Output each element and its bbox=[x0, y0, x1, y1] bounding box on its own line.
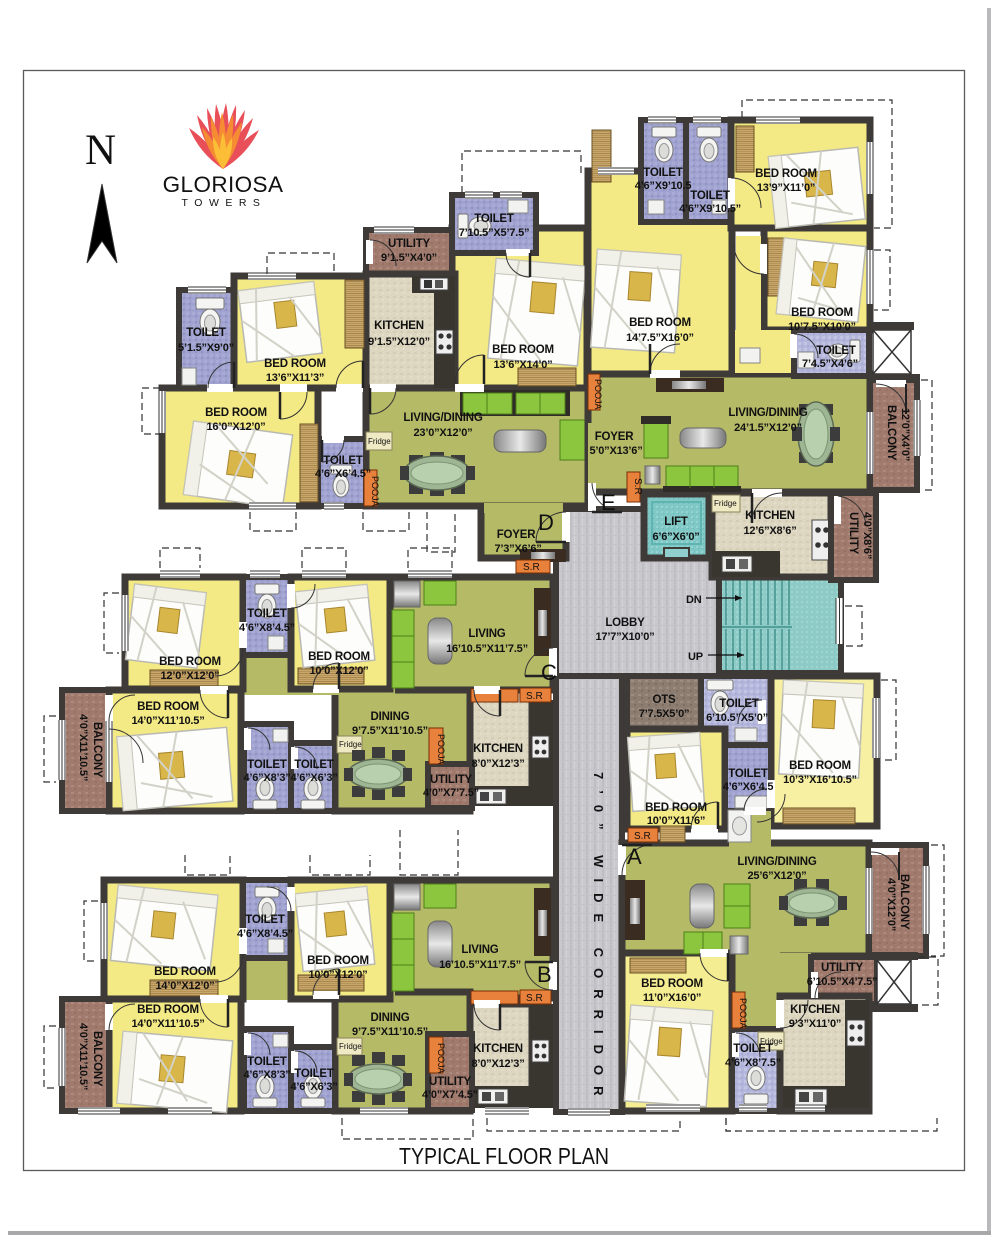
svg-text:4’0”X12’0”: 4’0”X12’0” bbox=[885, 878, 897, 931]
svg-text:BED ROOM: BED ROOM bbox=[137, 701, 199, 713]
svg-text:4’6”X6’4.5: 4’6”X6’4.5 bbox=[723, 781, 774, 793]
svg-text:S.R: S.R bbox=[634, 831, 651, 842]
svg-text:5’1.5”X9’0”: 5’1.5”X9’0” bbox=[178, 342, 234, 354]
svg-text:LIVING: LIVING bbox=[461, 944, 498, 956]
svg-text:10’0”X12’0”: 10’0”X12’0” bbox=[310, 665, 369, 677]
svg-text:Fridge: Fridge bbox=[339, 1042, 362, 1051]
svg-text:TOILET: TOILET bbox=[247, 1056, 287, 1068]
svg-text:TYPICAL FLOOR PLAN: TYPICAL FLOOR PLAN bbox=[399, 1143, 609, 1169]
svg-text:BED ROOM: BED ROOM bbox=[205, 407, 267, 419]
svg-text:4’6”X8’4.5”: 4’6”X8’4.5” bbox=[239, 622, 295, 634]
svg-text:13’6”X14’0”: 13’6”X14’0” bbox=[494, 359, 553, 371]
svg-text:UTILITY: UTILITY bbox=[429, 1076, 472, 1088]
svg-text:BED ROOM: BED ROOM bbox=[755, 168, 817, 180]
svg-text:14’7.5”X16’0”: 14’7.5”X16’0” bbox=[626, 332, 694, 344]
svg-text:10’3”X16’10.5”: 10’3”X16’10.5” bbox=[783, 774, 857, 786]
svg-text:FOYER: FOYER bbox=[595, 431, 635, 443]
svg-text:BED ROOM: BED ROOM bbox=[307, 955, 369, 967]
svg-text:14’0”X11’10.5”: 14’0”X11’10.5” bbox=[131, 1018, 204, 1030]
svg-text:8’0”X12’3”: 8’0”X12’3” bbox=[471, 1058, 524, 1070]
svg-text:FOYER: FOYER bbox=[497, 529, 537, 541]
svg-text:TOILET: TOILET bbox=[690, 190, 730, 202]
svg-text:LIVING/DINING: LIVING/DINING bbox=[728, 407, 807, 419]
svg-text:BALCONY: BALCONY bbox=[898, 874, 910, 930]
svg-text:C: C bbox=[541, 660, 557, 685]
svg-text:E: E bbox=[601, 490, 616, 515]
svg-text:POOJA: POOJA bbox=[436, 1043, 446, 1074]
svg-text:TOWERS: TOWERS bbox=[182, 197, 267, 209]
svg-text:KITCHEN: KITCHEN bbox=[473, 1043, 523, 1055]
svg-text:BED ROOM: BED ROOM bbox=[791, 307, 853, 319]
svg-text:UTILITY: UTILITY bbox=[847, 512, 859, 555]
svg-text:4’6”X9’10.5”: 4’6”X9’10.5” bbox=[679, 203, 741, 215]
svg-text:BED ROOM: BED ROOM bbox=[137, 1004, 199, 1016]
svg-text:LIVING/DINING: LIVING/DINING bbox=[737, 856, 816, 868]
svg-text:4’6”X6’3”: 4’6”X6’3” bbox=[290, 772, 337, 784]
svg-text:13’9”X11’0”: 13’9”X11’0” bbox=[757, 182, 815, 194]
svg-text:TOILET: TOILET bbox=[186, 327, 226, 339]
svg-text:KITCHEN: KITCHEN bbox=[374, 320, 424, 332]
svg-text:TOILET: TOILET bbox=[733, 1043, 773, 1055]
svg-text:16’10.5”X11’7.5”: 16’10.5”X11’7.5” bbox=[439, 959, 521, 971]
svg-text:KITCHEN: KITCHEN bbox=[745, 510, 795, 522]
svg-text:11’0”X16’0”: 11’0”X16’0” bbox=[643, 992, 701, 1004]
svg-text:7’7.5X5’0”: 7’7.5X5’0” bbox=[639, 708, 690, 720]
svg-text:10’7.5”X10’0”: 10’7.5”X10’0” bbox=[788, 321, 856, 333]
svg-text:17’7”X10’0”: 17’7”X10’0” bbox=[596, 631, 655, 643]
svg-text:BALCONY: BALCONY bbox=[91, 722, 103, 778]
svg-text:A: A bbox=[627, 844, 642, 869]
svg-text:9’3”X11’0”: 9’3”X11’0” bbox=[789, 1018, 841, 1030]
svg-text:7’0” WIDE CORRIDOR: 7’0” WIDE CORRIDOR bbox=[591, 772, 606, 1107]
svg-text:BED ROOM: BED ROOM bbox=[641, 978, 703, 990]
svg-text:4’0”X8’6”: 4’0”X8’6” bbox=[861, 512, 873, 559]
svg-text:Fridge: Fridge bbox=[714, 499, 737, 508]
svg-text:4’6”X8’3”: 4’6”X8’3” bbox=[243, 1069, 290, 1081]
svg-text:POOJA: POOJA bbox=[436, 734, 446, 765]
svg-text:POOJA: POOJA bbox=[738, 998, 748, 1029]
svg-text:TOILET: TOILET bbox=[247, 759, 287, 771]
svg-text:DINING: DINING bbox=[370, 1012, 409, 1024]
svg-text:8’0”X12’3”: 8’0”X12’3” bbox=[471, 758, 524, 770]
svg-text:POOJA: POOJA bbox=[370, 476, 380, 507]
svg-text:9’1.5”X12’0”: 9’1.5”X12’0” bbox=[368, 336, 430, 348]
svg-text:BED ROOM: BED ROOM bbox=[645, 802, 707, 814]
svg-text:4’6”X6’3”: 4’6”X6’3” bbox=[290, 1081, 337, 1093]
svg-text:4’0”X11’10.5”: 4’0”X11’10.5” bbox=[77, 714, 89, 781]
svg-text:4’6”X9’10.5: 4’6”X9’10.5 bbox=[635, 180, 692, 192]
svg-text:LIVING/DINING: LIVING/DINING bbox=[403, 412, 482, 424]
svg-text:UTILITY: UTILITY bbox=[821, 962, 864, 974]
svg-text:10’0”X12’0”: 10’0”X12’0” bbox=[309, 969, 368, 981]
svg-text:6’6”X6’0”: 6’6”X6’0” bbox=[652, 531, 699, 543]
svg-text:14’0”X12’0”: 14’0”X12’0” bbox=[156, 980, 215, 992]
svg-text:14’0”X11’10.5”: 14’0”X11’10.5” bbox=[131, 715, 204, 727]
svg-text:S.R: S.R bbox=[526, 691, 543, 702]
svg-text:TOILET: TOILET bbox=[719, 698, 759, 710]
svg-text:D: D bbox=[538, 510, 554, 535]
svg-text:S.R: S.R bbox=[632, 478, 643, 495]
svg-text:12’0”X12’0”: 12’0”X12’0” bbox=[161, 670, 220, 682]
svg-text:LIVING: LIVING bbox=[468, 628, 505, 640]
svg-text:TOILET: TOILET bbox=[247, 608, 287, 620]
svg-text:BALCONY: BALCONY bbox=[885, 405, 897, 461]
svg-text:7’10.5”X5’7.5”: 7’10.5”X5’7.5” bbox=[459, 227, 530, 239]
svg-text:7’3”X6’6”: 7’3”X6’6” bbox=[494, 543, 541, 555]
svg-text:12’0”X4’0”: 12’0”X4’0” bbox=[899, 408, 911, 461]
svg-text:GLORIOSA: GLORIOSA bbox=[163, 172, 284, 197]
svg-text:UP: UP bbox=[688, 651, 703, 663]
svg-text:N: N bbox=[85, 127, 116, 174]
svg-text:DINING: DINING bbox=[370, 711, 409, 723]
svg-text:4’6”X8’7.5”: 4’6”X8’7.5” bbox=[725, 1057, 781, 1069]
svg-text:4’6”X6’4.5”: 4’6”X6’4.5” bbox=[315, 468, 371, 480]
svg-text:TOILET: TOILET bbox=[816, 345, 856, 357]
svg-text:10’0”X11’6”: 10’0”X11’6” bbox=[647, 815, 705, 827]
svg-text:12’6”X8’6”: 12’6”X8’6” bbox=[743, 525, 796, 537]
svg-text:4’6”X8’4.5”: 4’6”X8’4.5” bbox=[237, 928, 293, 940]
svg-text:BED ROOM: BED ROOM bbox=[492, 344, 554, 356]
svg-text:13’6”X11’3”: 13’6”X11’3” bbox=[266, 372, 324, 384]
svg-text:B: B bbox=[537, 962, 552, 987]
svg-text:UTILITY: UTILITY bbox=[388, 238, 431, 250]
svg-text:4’0”X7’4.5”: 4’0”X7’4.5” bbox=[422, 1089, 478, 1101]
svg-text:BED ROOM: BED ROOM bbox=[308, 651, 370, 663]
svg-text:4’6”X8’3”: 4’6”X8’3” bbox=[243, 772, 290, 784]
svg-text:5’0”X13’6”: 5’0”X13’6” bbox=[589, 445, 642, 457]
svg-text:16’10.5”X11’7.5”: 16’10.5”X11’7.5” bbox=[446, 643, 528, 655]
svg-text:BED ROOM: BED ROOM bbox=[159, 656, 221, 668]
svg-text:BED ROOM: BED ROOM bbox=[629, 317, 691, 329]
svg-text:23’0”X12’0”: 23’0”X12’0” bbox=[414, 427, 473, 439]
svg-text:6’10.5”X5’0”: 6’10.5”X5’0” bbox=[706, 712, 768, 724]
svg-text:BALCONY: BALCONY bbox=[91, 1031, 103, 1087]
svg-text:Fridge: Fridge bbox=[368, 437, 391, 446]
svg-text:OTS: OTS bbox=[652, 694, 676, 706]
svg-text:TOILET: TOILET bbox=[474, 213, 514, 225]
svg-text:TOILET: TOILET bbox=[643, 167, 683, 179]
svg-text:16’0”X12’0”: 16’0”X12’0” bbox=[207, 421, 266, 433]
svg-text:25’6”X12’0”: 25’6”X12’0” bbox=[748, 870, 807, 882]
svg-text:DN: DN bbox=[686, 594, 702, 606]
svg-text:UTILITY: UTILITY bbox=[430, 774, 473, 786]
svg-text:6’10.5”X4’7.5”: 6’10.5”X4’7.5” bbox=[807, 976, 878, 988]
svg-text:24’1.5”X12’0”: 24’1.5”X12’0” bbox=[734, 422, 802, 434]
svg-text:BED ROOM: BED ROOM bbox=[154, 966, 216, 978]
svg-text:S.R: S.R bbox=[526, 993, 543, 1004]
svg-text:4’0”X7’7.5”: 4’0”X7’7.5” bbox=[423, 787, 479, 799]
svg-text:9’7.5”X11’10.5”: 9’7.5”X11’10.5” bbox=[352, 725, 428, 737]
svg-text:TOILET: TOILET bbox=[728, 768, 768, 780]
svg-text:POOJA: POOJA bbox=[593, 379, 603, 410]
svg-text:S.R: S.R bbox=[523, 562, 540, 573]
svg-text:9’1.5”X4’0”: 9’1.5”X4’0” bbox=[381, 252, 437, 264]
svg-text:LIFT: LIFT bbox=[664, 516, 688, 528]
svg-text:TOILET: TOILET bbox=[323, 455, 363, 467]
svg-text:KITCHEN: KITCHEN bbox=[790, 1004, 840, 1016]
svg-text:4’0”X11’10.5”: 4’0”X11’10.5” bbox=[77, 1023, 89, 1090]
svg-text:BED ROOM: BED ROOM bbox=[264, 358, 326, 370]
svg-text:9’7.5”X11’10.5”: 9’7.5”X11’10.5” bbox=[352, 1026, 428, 1038]
svg-text:BED ROOM: BED ROOM bbox=[789, 760, 851, 772]
svg-text:Fridge: Fridge bbox=[339, 740, 362, 749]
svg-text:KITCHEN: KITCHEN bbox=[473, 743, 523, 755]
svg-text:TOILET: TOILET bbox=[294, 1068, 334, 1080]
svg-text:7’4.5”X4’6”: 7’4.5”X4’6” bbox=[802, 358, 858, 370]
svg-text:TOILET: TOILET bbox=[294, 759, 334, 771]
svg-text:TOILET: TOILET bbox=[245, 914, 285, 926]
svg-text:LOBBY: LOBBY bbox=[605, 617, 645, 629]
